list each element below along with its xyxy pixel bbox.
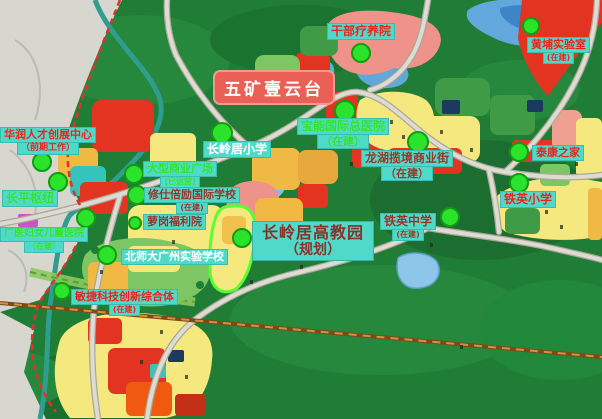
map-label-subtext: （在建） bbox=[317, 134, 369, 150]
map-label-text: 铁英小学 bbox=[500, 191, 556, 208]
map-label-huangpu-lab: 黄埔实验室(在建) bbox=[527, 37, 590, 64]
map-label-text: 广医妇女儿童医院 bbox=[0, 227, 88, 242]
map-label-tieying-middle-school: 铁英中学(在建) bbox=[380, 213, 436, 241]
map-label-subtext: （前期工作） bbox=[17, 142, 79, 155]
site-marker-huarun-talent-center bbox=[32, 152, 52, 172]
map-label-subtext: （在建） bbox=[24, 241, 64, 253]
map-label-subtext: (在建) bbox=[109, 304, 140, 316]
district-title-line2: （规划） bbox=[262, 242, 364, 258]
map-label-text: 北师大广州实验学校 bbox=[121, 249, 228, 265]
site-marker-minjie-tech-complex bbox=[53, 282, 71, 300]
map-label-changlingju-primary-school: 长岭居小学 bbox=[203, 141, 271, 158]
site-marker-luogang-welfare-home-2 bbox=[128, 216, 142, 230]
map-label-subtext: (在建) bbox=[543, 52, 574, 64]
map-label-changping-hub: 长平枢纽 bbox=[2, 190, 58, 207]
map-label-text: 铁英中学 bbox=[380, 213, 436, 230]
map-label-taikang-home: 泰康之家 bbox=[532, 145, 584, 161]
project-banner: 五矿壹云台 bbox=[213, 70, 335, 105]
map-label-longhu-commercial-street: 龙湖揽境商业街（在建） bbox=[361, 150, 453, 181]
site-marker-huangpu-lab bbox=[522, 17, 540, 35]
map-label-text: 萝岗福利院 bbox=[143, 214, 206, 230]
site-marker-bnu-guangzhou-school bbox=[97, 245, 117, 265]
map-label-luogang-welfare-home: 萝岗福利院 bbox=[143, 214, 206, 230]
map-label-text: 敏捷科技创新综合体 bbox=[71, 289, 178, 305]
map-label-text: 黄埔实验室 bbox=[527, 37, 590, 53]
site-marker-ganbu-sanatorium bbox=[351, 43, 371, 63]
map-label-text: 宝能国际总医院 bbox=[297, 118, 389, 135]
map-label-ganbu-sanatorium: 干部疗养院 bbox=[327, 23, 395, 40]
district-title-line1: 长岭居高教园 bbox=[262, 224, 364, 242]
map-label-commercial-plaza: 大型商业广场(已运营) bbox=[143, 161, 217, 188]
map-label-baoneng-hospital: 宝能国际总医院（在建） bbox=[297, 118, 389, 149]
site-marker-tieying-middle-school bbox=[440, 207, 460, 227]
map-label-huarun-talent-center: 华润人才创展中心（前期工作） bbox=[0, 127, 96, 155]
map-label-bnu-guangzhou-school: 北师大广州实验学校 bbox=[121, 249, 228, 265]
map-label-text: 长平枢纽 bbox=[2, 190, 58, 207]
map-label-text: 华润人才创展中心 bbox=[0, 127, 96, 143]
site-marker-luogang-welfare-home bbox=[76, 208, 96, 228]
map-label-text: 龙湖揽境商业街 bbox=[361, 150, 453, 167]
map-label-guangyi-women-children-hospital: 广医妇女儿童医院（在建） bbox=[0, 227, 88, 253]
district-title: 长岭居高教园 （规划） bbox=[252, 221, 374, 261]
map-label-xiushibeili-school: 修仕倍励国际学校(在建) bbox=[144, 187, 240, 214]
project-banner-text: 五矿壹云台 bbox=[224, 80, 324, 100]
map-label-subtext: (在建) bbox=[176, 202, 207, 214]
map-label-text: 修仕倍励国际学校 bbox=[144, 187, 240, 203]
map-label-subtext: （在建） bbox=[381, 166, 433, 182]
map-label-text: 长岭居小学 bbox=[203, 141, 271, 158]
map-label-subtext: (在建) bbox=[392, 229, 423, 241]
site-marker-changping-hub bbox=[48, 172, 68, 192]
map-label-minjie-tech-complex: 敏捷科技创新综合体(在建) bbox=[71, 289, 178, 316]
site-marker-commercial-plaza bbox=[124, 164, 144, 184]
site-marker-tieying-primary-school bbox=[509, 173, 529, 193]
map-label-text: 干部疗养院 bbox=[327, 23, 395, 40]
site-marker-taikang-home bbox=[509, 142, 529, 162]
map-label-text: 泰康之家 bbox=[532, 145, 584, 161]
site-marker-gaojiaoyuan-district bbox=[232, 228, 252, 248]
planning-map: 五矿壹云台 长岭居高教园 （规划） 干部疗养院黄埔实验室(在建)华润人才创展中心… bbox=[0, 0, 602, 419]
map-label-tieying-primary-school: 铁英小学 bbox=[500, 191, 556, 208]
map-label-text: 大型商业广场 bbox=[143, 161, 217, 177]
